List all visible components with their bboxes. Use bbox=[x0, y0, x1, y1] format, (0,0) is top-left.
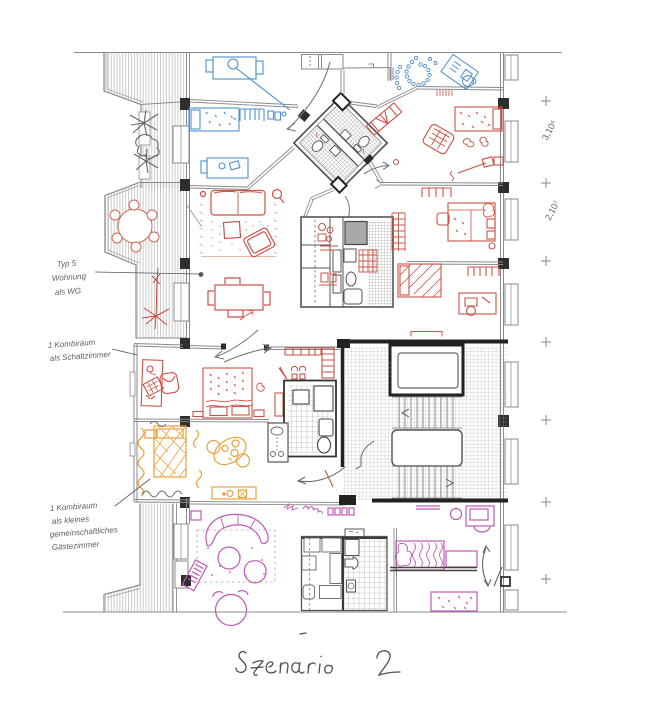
svg-text:als WG: als WG bbox=[55, 286, 82, 297]
svg-text:Typ 5: Typ 5 bbox=[57, 259, 78, 269]
